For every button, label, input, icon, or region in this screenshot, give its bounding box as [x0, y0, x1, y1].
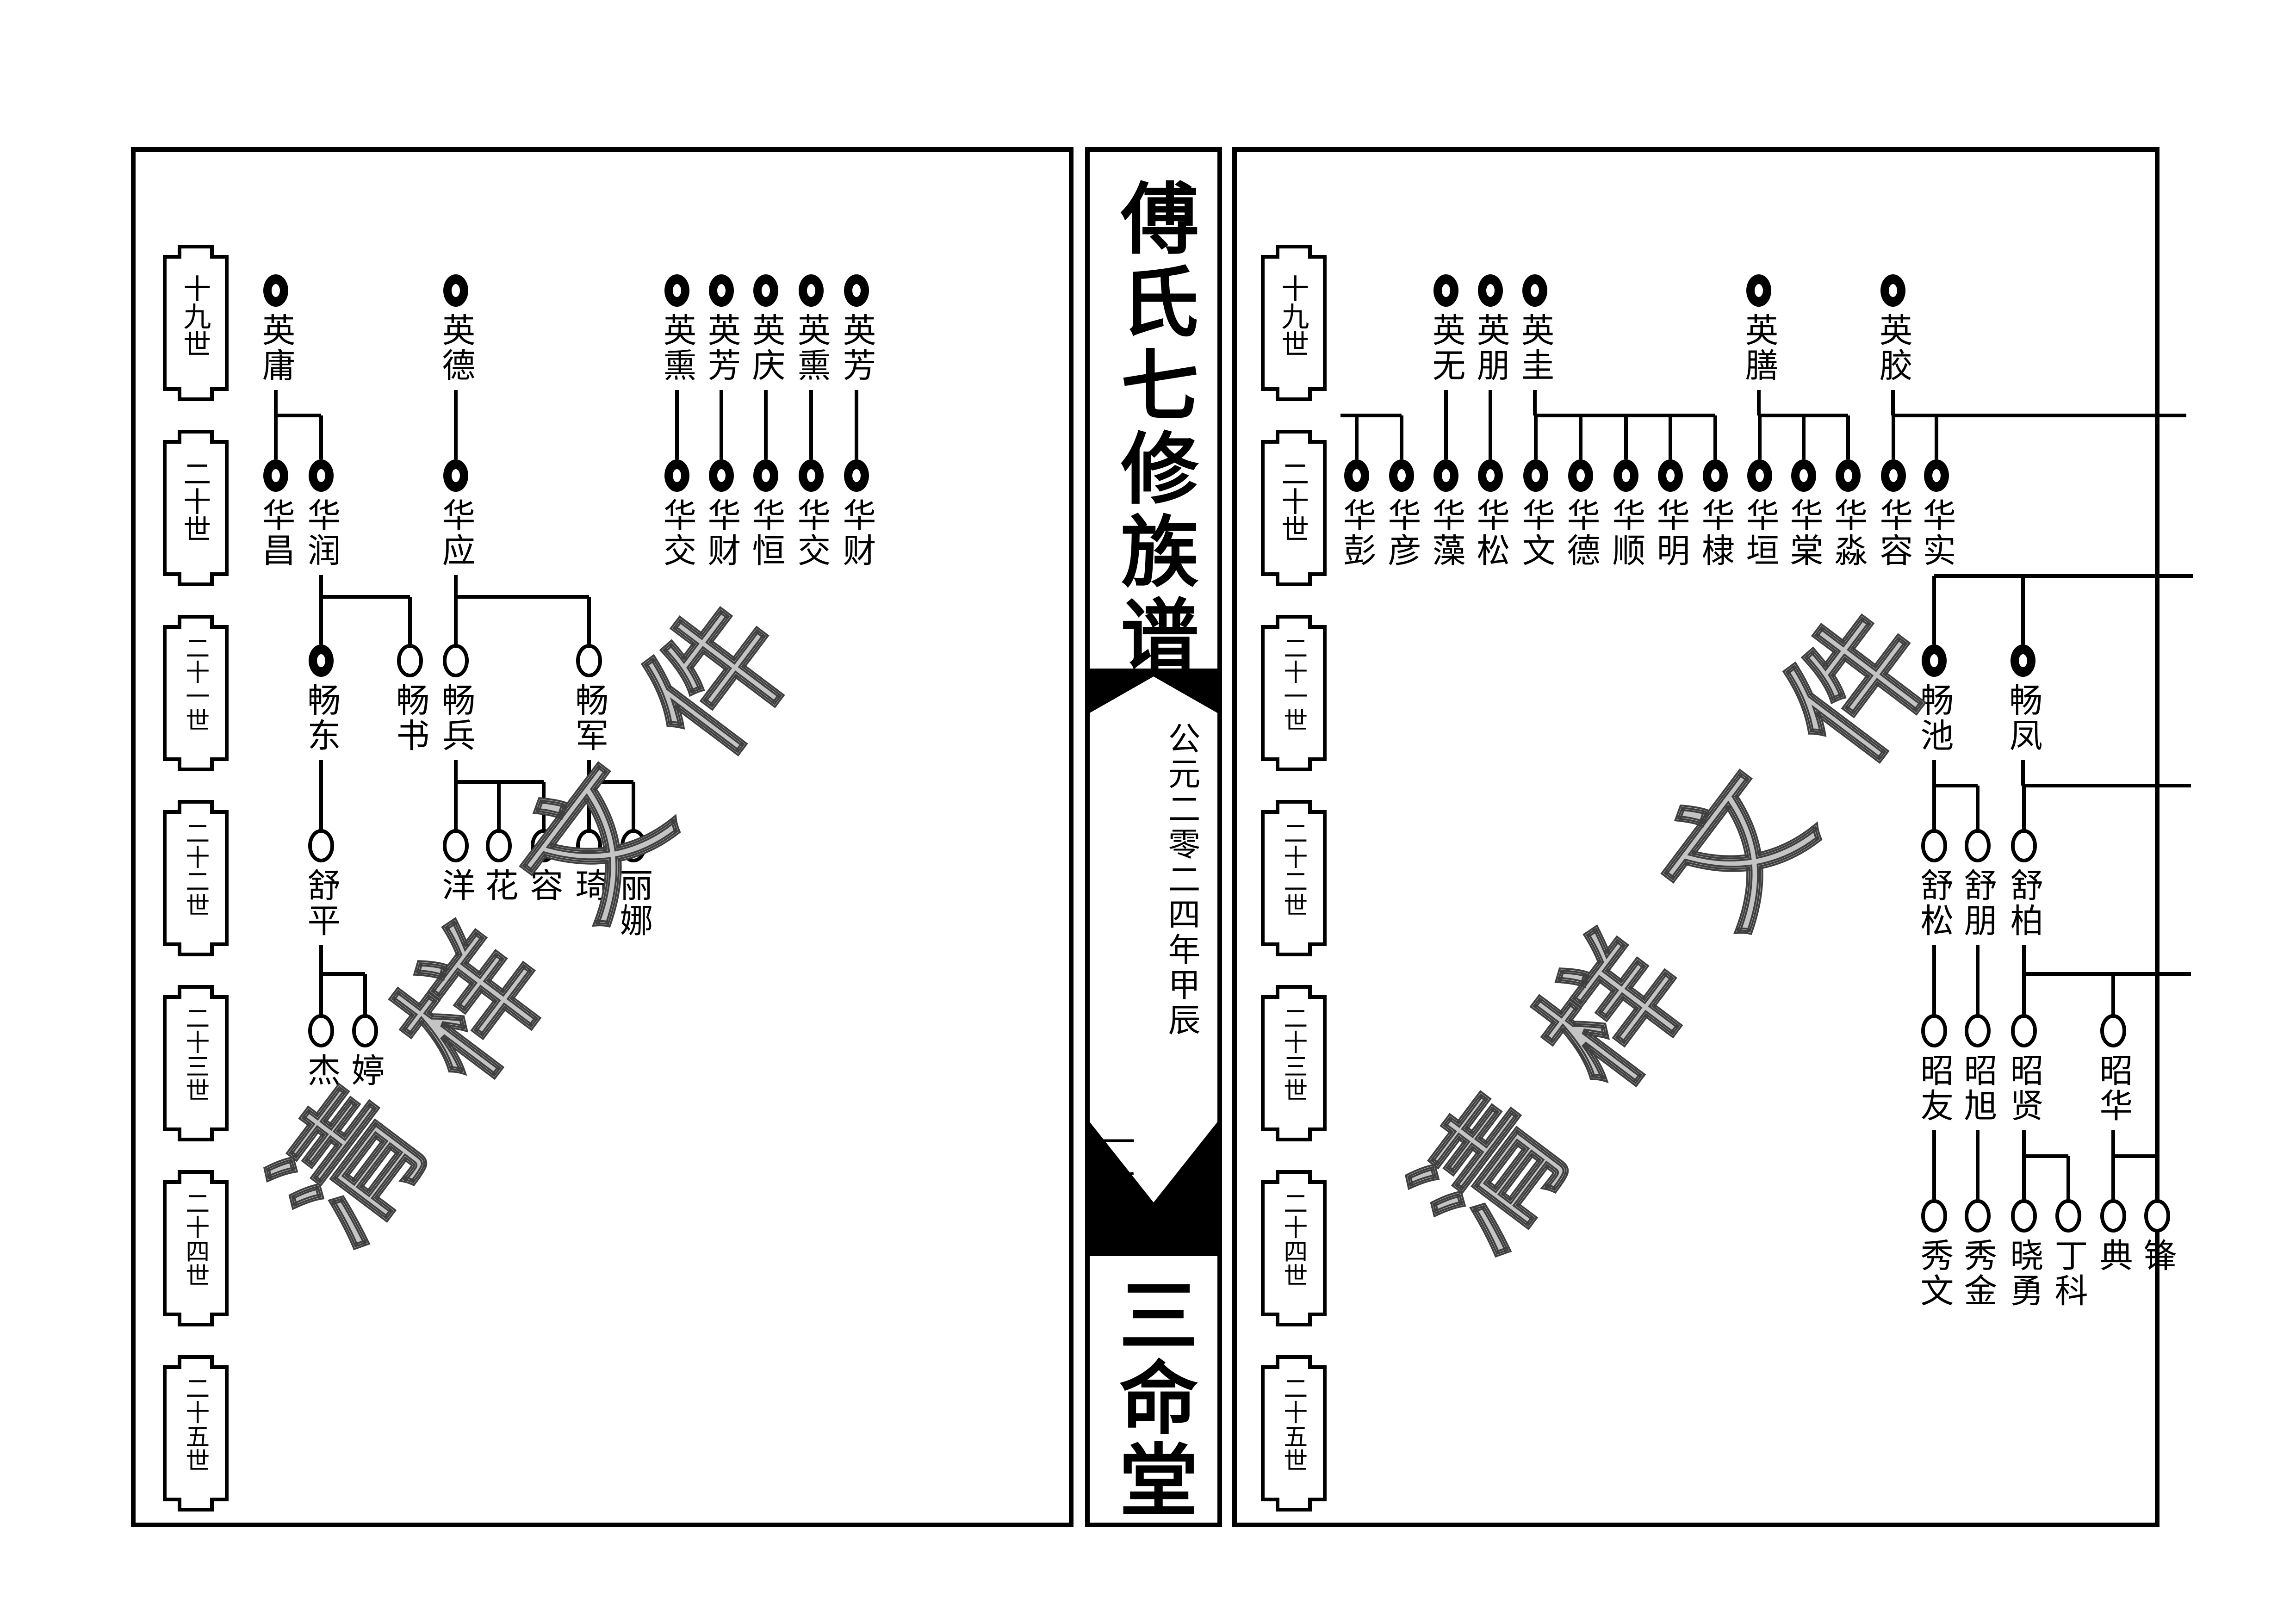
person-marker-hollow [2057, 1201, 2079, 1231]
person-name: 舒松 [1915, 868, 1953, 938]
generation-label: 二十四世 [1279, 1191, 1308, 1287]
person-marker-hole [1755, 284, 1763, 297]
book-title: 傅氏七修族谱 [1112, 178, 1195, 678]
generation-label: 二十五世 [1279, 1376, 1308, 1472]
person-marker-hollow [2013, 1016, 2035, 1046]
person-name: 畅兵 [437, 683, 475, 753]
person-marker-hole [1800, 469, 1808, 482]
person-name: 昭友 [1915, 1053, 1953, 1123]
person-marker-hollow [1967, 1016, 1989, 1046]
person-name: 华财 [838, 498, 875, 568]
page-number: 一七 [1097, 1124, 1134, 1200]
person-name: 畅凤 [2004, 683, 2042, 753]
person-marker-hollow [2013, 831, 2035, 861]
person-marker-hole [1442, 469, 1450, 482]
generation-label: 十九世 [1277, 274, 1309, 358]
person-name: 英膳 [1740, 313, 1778, 383]
person-marker-hole [452, 469, 460, 482]
person-marker-hole [1756, 469, 1764, 482]
person-name: 英熏 [792, 313, 830, 383]
person-name: 华松 [1471, 498, 1509, 568]
person-marker-hole [272, 469, 280, 482]
edition-date: 公元二零二四年甲辰 [1164, 722, 1199, 1038]
person-name: 华彭 [1338, 498, 1376, 568]
person-marker-hole [852, 469, 861, 482]
person-name: 昭华 [2094, 1053, 2132, 1123]
person-name: 英芳 [702, 313, 740, 383]
person-name: 锋 [2138, 1238, 2176, 1273]
person-marker-hole [1711, 469, 1719, 482]
person-marker-hole [1531, 284, 1539, 297]
person-marker-hole [452, 284, 460, 297]
person-marker-hole [1532, 469, 1540, 482]
person-marker-hole [762, 284, 770, 297]
person-name: 英芳 [838, 313, 875, 383]
generation-label: 二十一世 [1279, 636, 1308, 732]
person-name: 华藻 [1427, 498, 1465, 568]
person-name: 舒平 [302, 868, 340, 938]
person-marker-hole [1486, 284, 1495, 297]
person-marker-hole [1932, 469, 1941, 482]
person-marker-hollow [445, 646, 467, 675]
generation-label: 二十四世 [181, 1191, 210, 1287]
person-marker-hole [673, 469, 681, 482]
person-marker-hole [673, 284, 681, 297]
person-marker-hole [1666, 469, 1675, 482]
person-name: 秀金 [1959, 1238, 1997, 1308]
person-marker-hole [317, 469, 325, 482]
person-name: 畅书 [391, 683, 429, 753]
generation-label: 二十二世 [181, 821, 210, 917]
generation-label: 二十世 [1277, 459, 1309, 543]
person-name: 丁科 [2049, 1238, 2087, 1308]
person-marker-hollow [1923, 831, 1945, 861]
person-marker-hollow [2102, 1201, 2124, 1231]
person-name: 华应 [437, 498, 475, 568]
person-name: 华润 [302, 498, 340, 568]
person-marker-hole [1442, 284, 1450, 297]
person-name: 畅东 [302, 683, 340, 753]
generation-label: 二十二世 [1279, 821, 1308, 917]
person-name: 昭旭 [1959, 1053, 1997, 1123]
person-name: 华彦 [1383, 498, 1421, 568]
person-marker-hole [852, 284, 861, 297]
person-name: 秀文 [1915, 1238, 1953, 1308]
person-marker-hollow [1923, 1201, 1945, 1231]
genealogy-book-spread: 傅氏七修族谱 公元二零二四年甲辰 一七 三命堂 英庸英德英熏英芳英庆英熏英芳华昌… [0, 0, 2296, 1623]
generation-label: 二十三世 [1279, 1006, 1308, 1102]
generation-label: 二十世 [179, 459, 211, 543]
person-name: 华垣 [1741, 498, 1779, 568]
person-marker-hole [1844, 469, 1852, 482]
person-name: 典 [2094, 1238, 2132, 1273]
person-marker-hole [2019, 654, 2027, 667]
generation-label: 二十一世 [181, 636, 210, 732]
person-name: 英圭 [1516, 313, 1554, 383]
person-marker-hole [717, 469, 726, 482]
person-name: 华实 [1917, 498, 1955, 568]
person-name: 英熏 [658, 313, 696, 383]
person-marker-hollow [1923, 1016, 1945, 1046]
person-name: 华顺 [1607, 498, 1645, 568]
person-name: 华德 [1562, 498, 1600, 568]
person-marker-hole [1889, 284, 1897, 297]
person-name: 英庸 [257, 313, 295, 383]
person-marker-hollow [1967, 1201, 1989, 1231]
hall-name: 三命堂 [1110, 1275, 1193, 1522]
person-name: 华昌 [257, 498, 295, 568]
person-name: 华文 [1517, 498, 1555, 568]
person-marker-hole [317, 654, 325, 667]
person-marker-hole [272, 284, 280, 297]
person-marker-hole [807, 469, 815, 482]
person-marker-hole [1486, 469, 1495, 482]
person-marker-hollow [310, 831, 332, 861]
person-marker-hole [762, 469, 770, 482]
person-marker-hollow [2013, 1201, 2035, 1231]
person-name: 华棣 [1696, 498, 1734, 568]
person-marker-hollow [2146, 1201, 2168, 1231]
person-name: 舒柏 [2005, 868, 2043, 938]
person-name: 英胶 [1874, 313, 1912, 383]
person-name: 英朋 [1471, 313, 1509, 383]
generation-label: 十九世 [179, 274, 211, 358]
person-marker-hole [1622, 469, 1630, 482]
person-name: 舒朋 [1959, 868, 1997, 938]
person-name: 华明 [1651, 498, 1689, 568]
person-marker-hollow [399, 646, 421, 675]
person-marker-hole [1397, 469, 1406, 482]
person-marker-hole [717, 284, 726, 297]
person-name: 英庆 [747, 313, 785, 383]
person-name: 英德 [437, 313, 475, 383]
generation-label: 二十三世 [181, 1006, 210, 1102]
person-marker-hollow [1967, 831, 1989, 861]
person-marker-hollow [2102, 1016, 2124, 1046]
person-name: 华交 [792, 498, 830, 568]
generation-label: 二十五世 [181, 1376, 210, 1472]
person-name: 晓勇 [2005, 1238, 2043, 1308]
person-marker-hole [1889, 469, 1898, 482]
person-marker-hole [1353, 469, 1361, 482]
person-name: 昭贤 [2005, 1053, 2043, 1123]
person-marker-hole [1576, 469, 1585, 482]
person-marker-hole [807, 284, 815, 297]
person-name: 英无 [1427, 313, 1465, 383]
